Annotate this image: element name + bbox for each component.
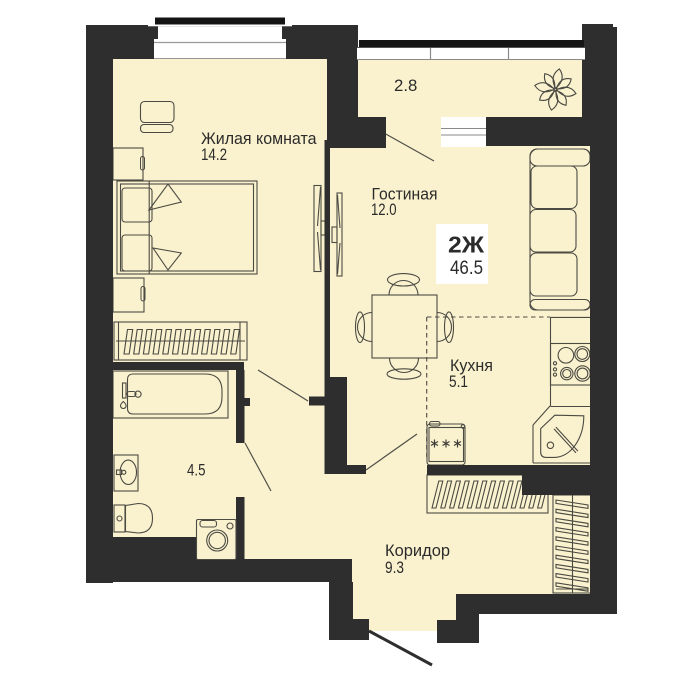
svg-text:46.5: 46.5 xyxy=(450,258,483,279)
svg-text:4.5: 4.5 xyxy=(187,461,206,480)
svg-text:14.2: 14.2 xyxy=(201,145,227,164)
svg-text:9.3: 9.3 xyxy=(385,558,404,577)
svg-text:5.1: 5.1 xyxy=(449,372,468,391)
svg-text:12.0: 12.0 xyxy=(371,200,397,219)
svg-text:2.8: 2.8 xyxy=(394,76,417,95)
svg-text:2Ж: 2Ж xyxy=(448,232,484,258)
